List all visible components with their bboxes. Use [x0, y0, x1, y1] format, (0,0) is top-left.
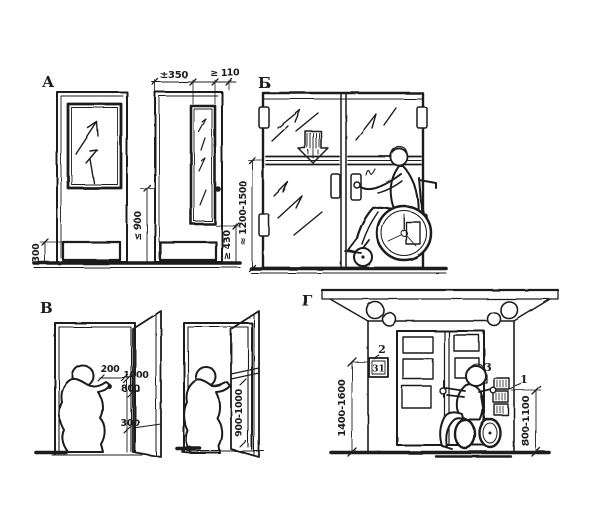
wheelchair-user-silhouette	[182, 367, 230, 453]
dim-800: 800	[122, 384, 142, 395]
lamp-icon	[383, 313, 396, 326]
dim-800-1100: 800-1100	[521, 395, 532, 446]
dim-350: ±350	[160, 70, 188, 81]
kick-plate	[63, 242, 120, 260]
lamp-icon	[501, 302, 518, 319]
house-number-sign: 2 31	[369, 343, 388, 377]
down-arrow-icon	[298, 131, 328, 163]
dimension-sign-height: 1400-1600	[337, 358, 369, 456]
section-v-label: В	[40, 299, 53, 317]
glass-reflection-icon	[199, 119, 206, 205]
head	[391, 149, 408, 166]
wheelchair-user-silhouette	[59, 366, 112, 453]
door-handle	[331, 174, 340, 198]
section-a: А	[31, 68, 240, 268]
dimension-panel-height: 800-1100	[511, 386, 541, 456]
sign-number-text: 31	[372, 365, 385, 375]
dimension-kick-300: 300	[31, 239, 63, 264]
dimension-handle-900: ≤ 900	[133, 185, 154, 264]
dim-200: 200	[101, 364, 121, 375]
door-knob	[108, 385, 113, 390]
dim-900-1000: 900-1000	[234, 388, 245, 437]
figure-page: А	[0, 0, 604, 523]
dim-900: ≤ 900	[133, 211, 144, 241]
dim-1400-1600: 1400-1600	[337, 379, 348, 436]
accessibility-doors-figure: А	[0, 0, 604, 523]
glass-reflection-icon	[76, 122, 98, 183]
door-a-right	[155, 92, 222, 262]
dim-430: ≥ 430	[222, 230, 233, 260]
lamp-icon	[488, 313, 501, 326]
section-b: Б	[238, 74, 446, 273]
hinge-icon	[417, 107, 427, 128]
door-a-left	[57, 92, 127, 262]
rear-wheel	[455, 420, 475, 448]
door-handle-knob	[215, 186, 221, 192]
lamp-icon	[367, 302, 384, 319]
dimension-glazing-430: ≥ 430	[216, 223, 240, 264]
section-a-label: А	[42, 73, 55, 91]
section-b-label: Б	[258, 74, 271, 92]
callout-2: 2	[378, 343, 386, 356]
section-g: Г	[302, 290, 558, 457]
glass-reflection-icon	[272, 108, 396, 235]
dim-300: 300	[121, 418, 141, 429]
kick-plate	[160, 242, 216, 260]
hand	[440, 388, 446, 394]
dim-110: ≥ 110	[210, 68, 240, 79]
hand	[354, 182, 360, 188]
hinge-icon	[259, 107, 269, 128]
dim-1000: 1000	[123, 370, 149, 381]
entrance-canopy	[322, 290, 558, 326]
dimension-glazing-width: ±350 ≥ 110	[152, 68, 240, 104]
section-g-label: Г	[302, 292, 313, 310]
dim-300: 300	[31, 243, 42, 263]
dim-1200-1500: ≈ 1200-1500	[238, 180, 249, 245]
hand	[490, 387, 496, 393]
push-handle	[419, 180, 436, 188]
hinge-icon	[259, 214, 269, 236]
section-v: В 200 1000 800	[36, 299, 264, 457]
